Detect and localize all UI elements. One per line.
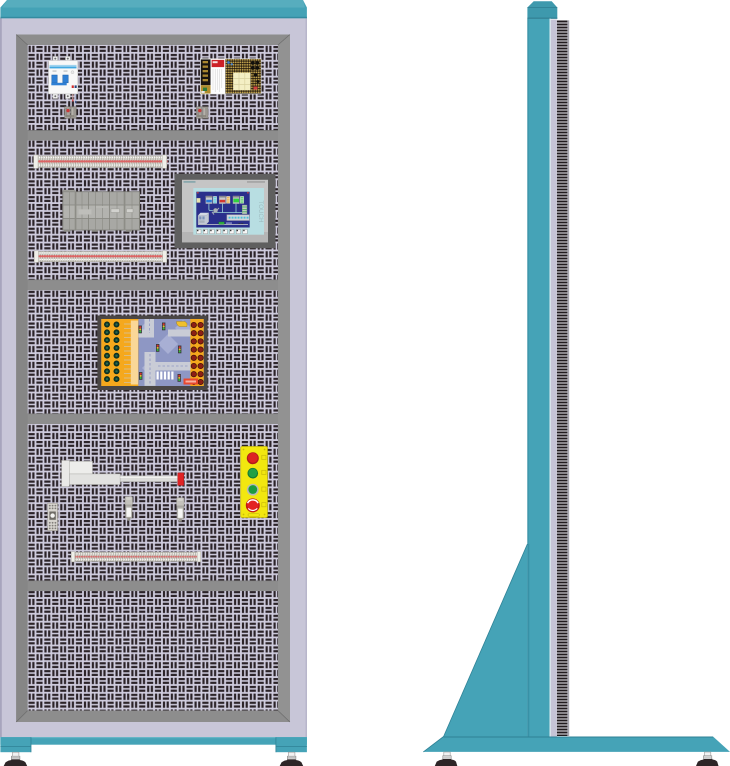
svg-text:TOUCH: TOUCH [257, 201, 264, 223]
